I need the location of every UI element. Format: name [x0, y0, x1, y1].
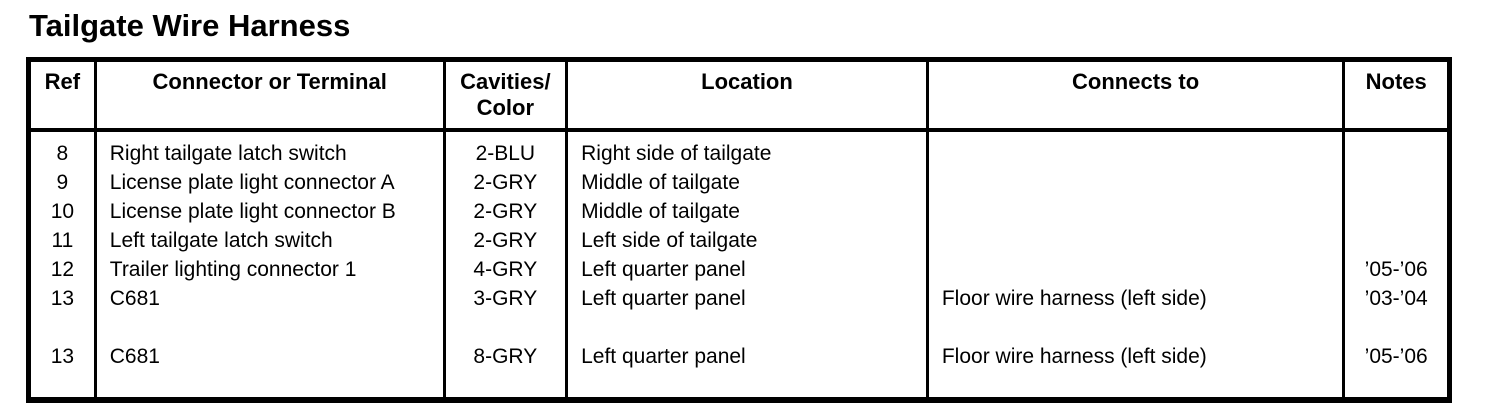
cell-connects_to-row-4	[942, 255, 1343, 284]
column-connector: Right tailgate latch switchLicense plate…	[97, 132, 446, 397]
cell-ref-row-7: 13	[31, 342, 94, 371]
cell-notes-row-5: ’03-’04	[1345, 284, 1447, 313]
column-header-connector-label: Connector or Terminal	[97, 69, 443, 95]
cell-notes-row-0	[1345, 139, 1447, 168]
column-header-ref: Ref	[31, 62, 97, 128]
column-header-location-label: Location	[568, 69, 926, 95]
cell-notes-row-1	[1345, 168, 1447, 197]
cell-connector-row-7: C681	[110, 342, 443, 371]
cell-connector-row-6	[110, 313, 443, 342]
table-header-row: RefConnector or TerminalCavities/ColorLo…	[31, 62, 1447, 132]
cell-cavities-row-3: 2-GRY	[446, 226, 566, 255]
cell-cavities-row-7: 8-GRY	[446, 342, 566, 371]
cell-cavities-row-6	[446, 313, 566, 342]
column-header-cavities-label: Color	[446, 95, 566, 121]
cell-location-row-3: Left side of tailgate	[581, 226, 926, 255]
cell-connects_to-row-6	[942, 313, 1343, 342]
column-notes: ’05-’06’03-’04’05-’06	[1345, 132, 1447, 397]
column-header-connects_to: Connects to	[929, 62, 1346, 128]
cell-connects_to-row-3	[942, 226, 1343, 255]
column-ref: 891011121313	[31, 132, 97, 397]
cell-connects_to-row-1	[942, 168, 1343, 197]
column-connects_to: Floor wire harness (left side)Floor wire…	[929, 132, 1346, 397]
cell-location-row-4: Left quarter panel	[581, 255, 926, 284]
cell-notes-row-7: ’05-’06	[1345, 342, 1447, 371]
cell-ref-row-2: 10	[31, 197, 94, 226]
cell-notes-row-6	[1345, 313, 1447, 342]
cell-ref-row-6	[31, 313, 94, 342]
cell-ref-row-0: 8	[31, 139, 94, 168]
cell-location-row-5: Left quarter panel	[581, 284, 926, 313]
column-header-ref-label: Ref	[31, 69, 94, 95]
column-header-notes-label: Notes	[1345, 69, 1447, 95]
cell-connector-row-0: Right tailgate latch switch	[110, 139, 443, 168]
cell-cavities-row-1: 2-GRY	[446, 168, 566, 197]
column-header-cavities: Cavities/Color	[446, 62, 569, 128]
wire-harness-table: RefConnector or TerminalCavities/ColorLo…	[26, 57, 1452, 403]
cell-connector-row-5: C681	[110, 284, 443, 313]
cell-connector-row-1: License plate light connector A	[110, 168, 443, 197]
cell-cavities-row-2: 2-GRY	[446, 197, 566, 226]
cell-ref-row-5: 13	[31, 284, 94, 313]
cell-connects_to-row-0	[942, 139, 1343, 168]
cell-ref-row-3: 11	[31, 226, 94, 255]
column-header-cavities-label: Cavities/	[446, 69, 566, 95]
cell-cavities-row-4: 4-GRY	[446, 255, 566, 284]
column-header-notes: Notes	[1345, 62, 1447, 128]
cell-notes-row-3	[1345, 226, 1447, 255]
column-location: Right side of tailgateMiddle of tailgate…	[568, 132, 929, 397]
cell-connects_to-row-2	[942, 197, 1343, 226]
cell-ref-row-4: 12	[31, 255, 94, 284]
cell-connector-row-2: License plate light connector B	[110, 197, 443, 226]
cell-connector-row-4: Trailer lighting connector 1	[110, 255, 443, 284]
cell-cavities-row-5: 3-GRY	[446, 284, 566, 313]
manual-page: Tailgate Wire Harness RefConnector or Te…	[0, 0, 1504, 420]
cell-location-row-1: Middle of tailgate	[581, 168, 926, 197]
table-body: 891011121313Right tailgate latch switchL…	[31, 132, 1447, 397]
page-title: Tailgate Wire Harness	[29, 8, 350, 44]
column-header-location: Location	[568, 62, 929, 128]
column-cavities: 2-BLU2-GRY2-GRY2-GRY4-GRY3-GRY8-GRY	[446, 132, 569, 397]
cell-cavities-row-0: 2-BLU	[446, 139, 566, 168]
cell-location-row-2: Middle of tailgate	[581, 197, 926, 226]
cell-ref-row-1: 9	[31, 168, 94, 197]
cell-location-row-0: Right side of tailgate	[581, 139, 926, 168]
cell-notes-row-2	[1345, 197, 1447, 226]
cell-location-row-7: Left quarter panel	[581, 342, 926, 371]
column-header-connector: Connector or Terminal	[97, 62, 446, 128]
cell-connector-row-3: Left tailgate latch switch	[110, 226, 443, 255]
cell-connects_to-row-7: Floor wire harness (left side)	[942, 342, 1343, 371]
cell-location-row-6	[581, 313, 926, 342]
cell-notes-row-4: ’05-’06	[1345, 255, 1447, 284]
column-header-connects_to-label: Connects to	[929, 69, 1343, 95]
cell-connects_to-row-5: Floor wire harness (left side)	[942, 284, 1343, 313]
